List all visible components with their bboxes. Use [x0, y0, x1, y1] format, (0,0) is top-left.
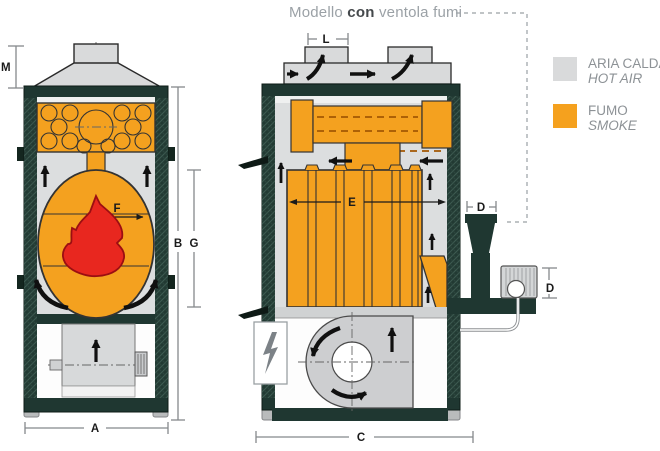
dimension-d-width: D	[467, 201, 496, 214]
title-suffix: ventola fumi	[375, 4, 463, 21]
dim-label-a: A	[91, 423, 99, 435]
legend-label-hot-air: ARIA CALDA	[588, 57, 660, 72]
left-wall	[24, 98, 37, 398]
right-wall	[155, 98, 168, 398]
legend: ARIA CALDA HOT AIR FUMO SMOKE	[553, 57, 660, 150]
dimension-c: C	[256, 431, 473, 444]
dimension-l: L	[308, 33, 348, 46]
dimension-a: A	[25, 422, 168, 435]
front-view-unit: F	[17, 42, 175, 417]
exchanger-left-header	[291, 100, 313, 152]
firebox	[287, 170, 422, 307]
burner-door	[62, 324, 135, 386]
leader-dashed-line	[456, 13, 527, 222]
legend-item-smoke: FUMO SMOKE	[553, 104, 660, 134]
legend-sublabel-smoke: SMOKE	[588, 119, 637, 134]
dimension-d-height: D	[542, 268, 557, 298]
diagram-stage: F M A	[0, 0, 660, 451]
title-bold: con	[347, 4, 374, 21]
smoke-swatch	[553, 104, 577, 128]
dim-label-m: M	[1, 62, 11, 74]
door-knob	[135, 352, 147, 376]
exchanger-tube-bundle	[313, 106, 422, 143]
dim-label-e: E	[348, 197, 356, 209]
legend-label-smoke: FUMO	[588, 104, 637, 119]
base-bar	[272, 408, 448, 421]
title-prefix: Modello	[289, 4, 347, 21]
dim-label-d-height: D	[546, 283, 554, 295]
dim-label-b: B	[174, 238, 182, 250]
air-outlet-left	[305, 47, 348, 64]
fan-motor	[501, 266, 537, 298]
dim-label-f: F	[113, 203, 120, 215]
door-sill	[62, 386, 135, 397]
dim-label-l: L	[322, 34, 329, 46]
diagram-title: Modello con ventola fumi	[289, 4, 462, 21]
dimension-g: G	[187, 170, 201, 307]
legend-item-hot-air: ARIA CALDA HOT AIR	[553, 57, 660, 87]
top-strip	[37, 97, 155, 103]
dimension-b: B	[171, 87, 185, 420]
legend-sublabel-hot-air: HOT AIR	[588, 72, 660, 87]
dim-label-g: G	[190, 238, 199, 250]
dim-label-d-width: D	[477, 202, 485, 214]
electrical-box	[254, 322, 287, 384]
side-view-unit: L	[238, 33, 557, 444]
dim-label-c: C	[357, 432, 365, 444]
hood	[33, 63, 161, 87]
hot-air-swatch	[553, 57, 577, 81]
exchanger-right-header	[422, 101, 452, 148]
door-fitting	[50, 360, 62, 370]
dimension-m: M	[1, 46, 24, 88]
